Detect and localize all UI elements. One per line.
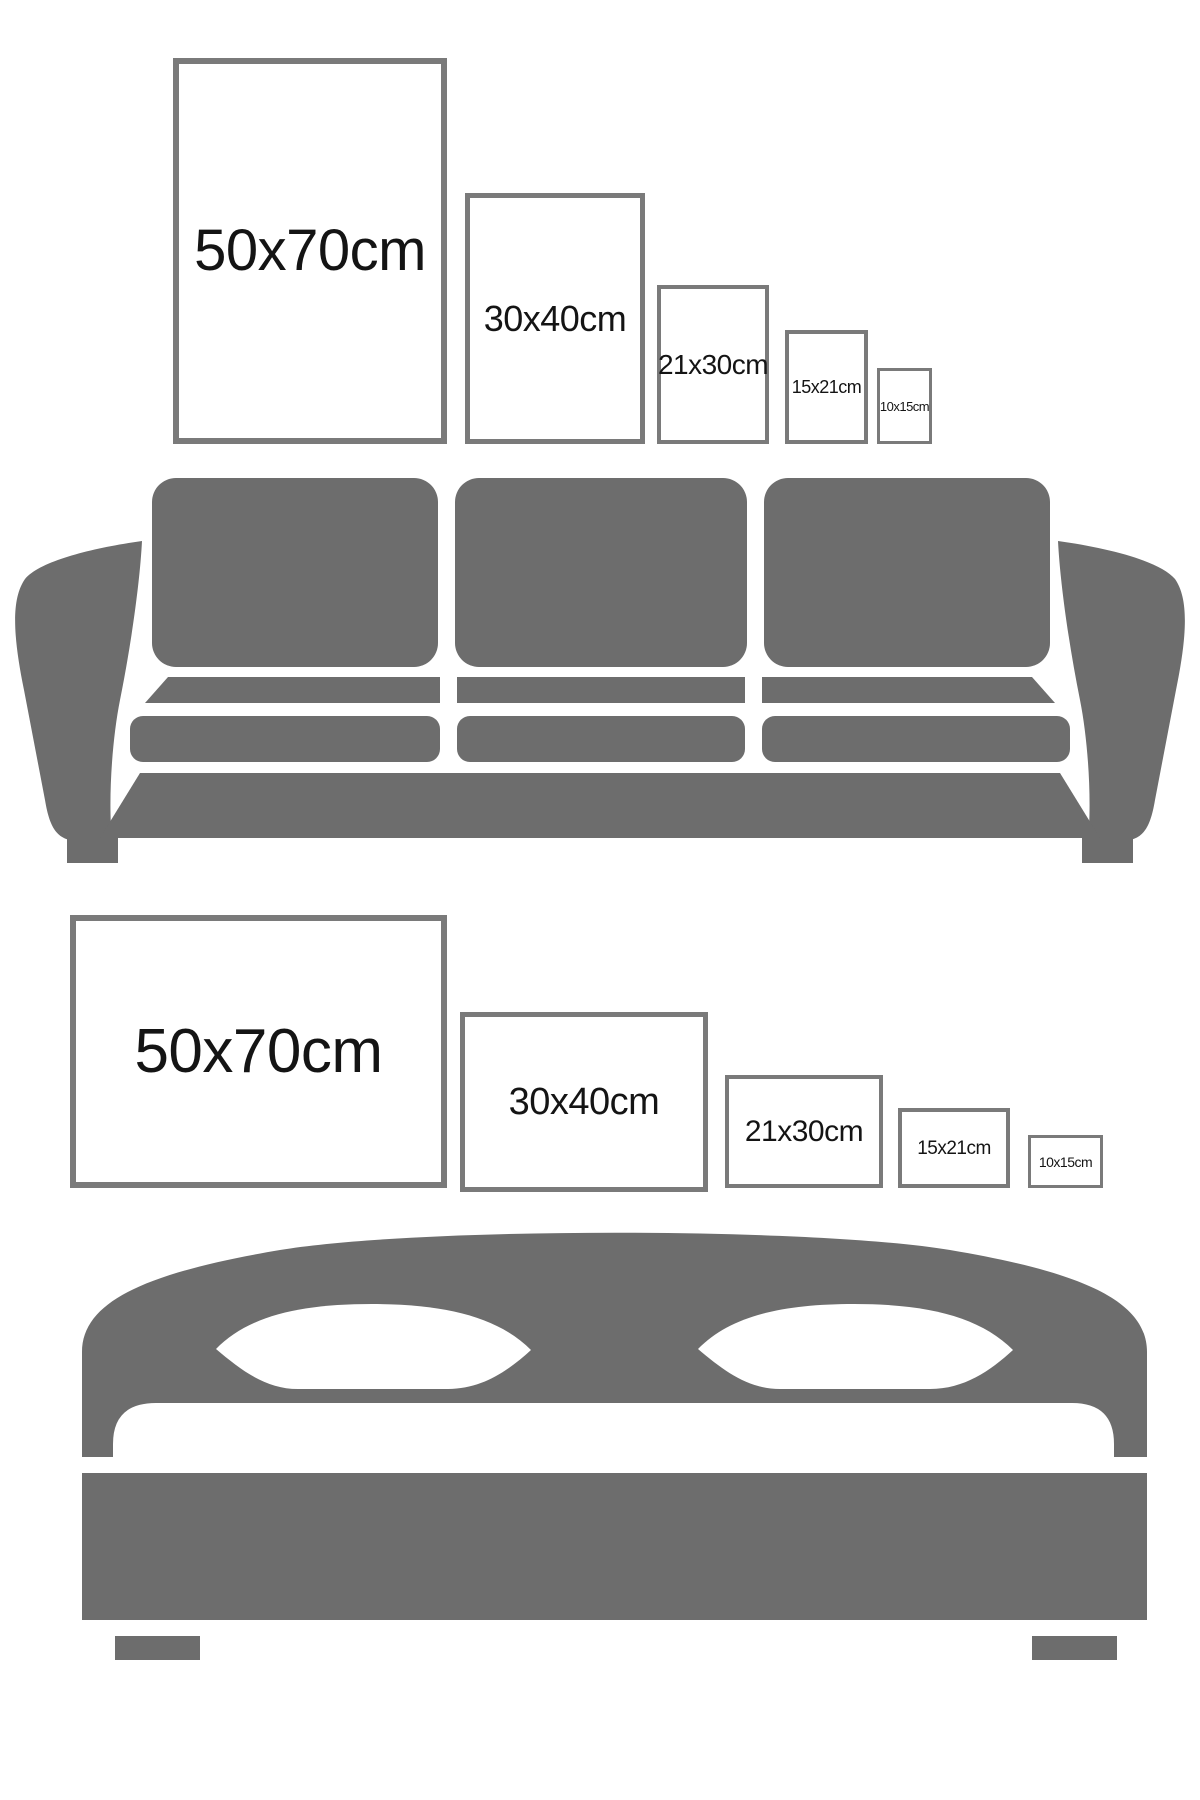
bed-base — [82, 1473, 1147, 1620]
frame-size-label: 10x15cm — [1039, 1155, 1092, 1169]
sofa-back-cushion — [455, 478, 747, 667]
frame-size-label: 21x30cm — [658, 351, 768, 379]
frame-portrait-30x40: 30x40cm — [465, 193, 645, 444]
sofa-rail-segment — [145, 677, 440, 703]
sofa-icon — [15, 478, 1185, 863]
bed-icon — [82, 1233, 1147, 1660]
frame-landscape-10x15: 10x15cm — [1028, 1135, 1103, 1188]
frame-size-label: 15x21cm — [917, 1139, 991, 1158]
frame-size-label: 21x30cm — [745, 1117, 863, 1147]
sofa-base — [100, 773, 1100, 838]
sofa-rail-segment — [457, 677, 745, 703]
sofa-seat-cushion — [457, 716, 745, 762]
sofa-right-arm — [1058, 541, 1185, 841]
frame-landscape-21x30: 21x30cm — [725, 1075, 883, 1188]
sofa-back-cushion — [152, 478, 438, 667]
size-guide-page: 50x70cm 30x40cm 21x30cm 15x21cm 10x15cm … — [0, 0, 1200, 1800]
sofa-seat-cushion — [130, 716, 440, 762]
frame-portrait-15x21: 15x21cm — [785, 330, 868, 444]
frame-landscape-15x21: 15x21cm — [898, 1108, 1010, 1188]
sofa-left-arm — [15, 541, 142, 841]
frame-portrait-10x15: 10x15cm — [877, 368, 932, 444]
sofa-back-cushion — [764, 478, 1050, 667]
frame-size-label: 30x40cm — [509, 1083, 660, 1121]
sofa-seat-cushion — [762, 716, 1070, 762]
frame-portrait-21x30: 21x30cm — [657, 285, 769, 444]
frame-size-label: 15x21cm — [792, 378, 862, 396]
sofa-leg — [1082, 838, 1133, 863]
bed-leg — [115, 1636, 200, 1660]
sofa-rail-segment — [762, 677, 1055, 703]
sofa-leg — [67, 838, 118, 863]
bed-leg — [1032, 1636, 1117, 1660]
frame-landscape-50x70: 50x70cm — [70, 915, 447, 1188]
frame-size-label: 50x70cm — [194, 222, 426, 280]
frame-size-label: 10x15cm — [880, 400, 929, 413]
frame-portrait-50x70: 50x70cm — [173, 58, 447, 444]
frame-size-label: 30x40cm — [484, 301, 627, 337]
frame-size-label: 50x70cm — [134, 1021, 382, 1083]
frame-landscape-30x40: 30x40cm — [460, 1012, 708, 1192]
